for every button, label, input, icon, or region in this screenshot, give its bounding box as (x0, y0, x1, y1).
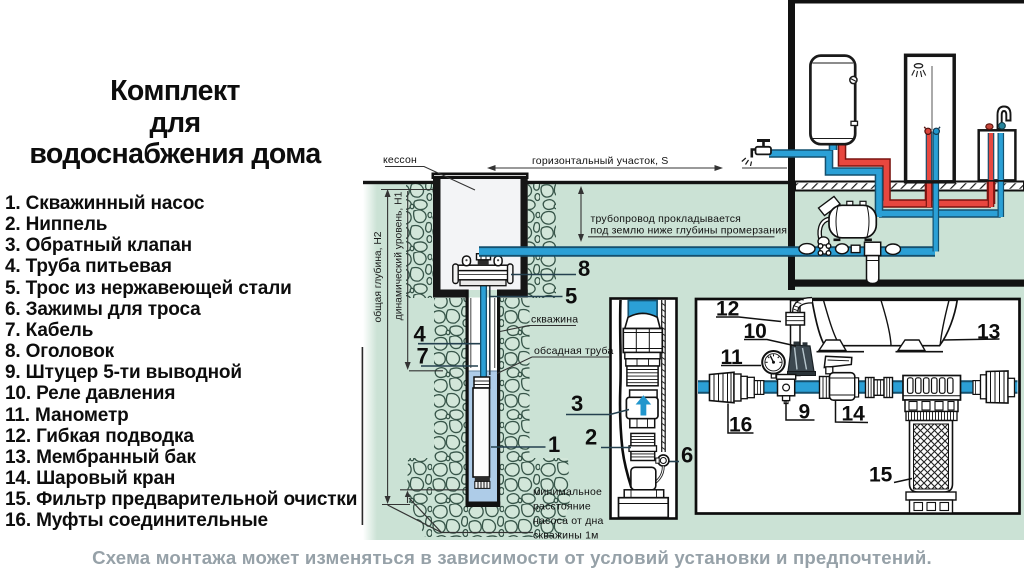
svg-text:15: 15 (869, 464, 893, 487)
svg-text:2: 2 (585, 425, 597, 450)
svg-text:под землю ниже глубины промерз: под землю ниже глубины промерзания (591, 225, 788, 237)
svg-text:расстояние: расстояние (533, 501, 591, 513)
svg-text:кессон: кессон (383, 154, 417, 166)
svg-text:3: 3 (571, 391, 583, 416)
svg-text:минимальное: минимальное (533, 486, 602, 498)
svg-text:скважины 1м: скважины 1м (533, 530, 599, 542)
svg-text:трубопровод прокладывается: трубопровод прокладывается (591, 213, 742, 225)
svg-text:горизонтальный участок, S: горизонтальный участок, S (532, 155, 669, 167)
svg-text:динамический уровень, Н1: динамический уровень, Н1 (394, 191, 405, 320)
svg-text:1: 1 (548, 432, 560, 457)
svg-text:скважина: скважина (531, 314, 578, 326)
svg-text:общая глубина, Н2: общая глубина, Н2 (372, 231, 384, 322)
svg-text:6: 6 (681, 443, 693, 468)
svg-text:8: 8 (578, 256, 590, 281)
svg-text:5: 5 (565, 284, 577, 309)
svg-text:насоса от дна: насоса от дна (533, 515, 604, 527)
svg-text:обсадная труба: обсадная труба (534, 345, 614, 357)
svg-text:7: 7 (417, 344, 429, 369)
